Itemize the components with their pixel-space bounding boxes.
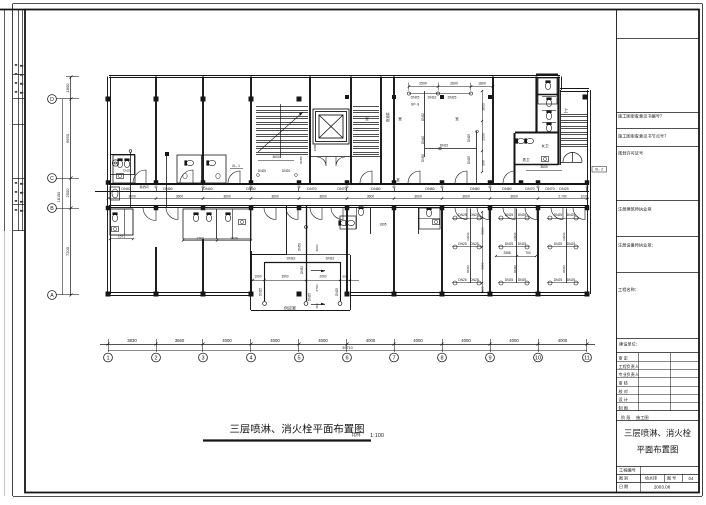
svg-text:1626: 1626 <box>230 236 238 240</box>
svg-text:DN40: DN40 <box>466 232 470 240</box>
svg-text:设 计: 设 计 <box>619 396 628 402</box>
svg-text:DN80: DN80 <box>425 187 434 191</box>
svg-text:2500: 2500 <box>482 133 486 141</box>
svg-text:2700: 2700 <box>315 284 319 291</box>
svg-text:DN25: DN25 <box>554 213 563 217</box>
svg-text:DN40: DN40 <box>513 232 517 240</box>
svg-text:1230: 1230 <box>580 194 588 198</box>
svg-text:6650: 6650 <box>65 133 70 143</box>
svg-text:审 定: 审 定 <box>619 355 628 361</box>
svg-text:DN32: DN32 <box>562 265 566 273</box>
svg-text:DN25: DN25 <box>567 213 576 217</box>
svg-text:500: 500 <box>342 275 347 279</box>
svg-text:室: 室 <box>398 116 402 121</box>
svg-text:DN25: DN25 <box>470 242 479 246</box>
svg-text:XL- 2: XL- 2 <box>595 168 603 172</box>
svg-text:11: 11 <box>584 356 590 362</box>
svg-text:DN80: DN80 <box>502 187 511 191</box>
svg-text:室: 室 <box>455 116 459 121</box>
svg-text:供应室: 供应室 <box>284 305 296 311</box>
svg-text:三层喷淋、消火栓平面布置图: 三层喷淋、消火栓平面布置图 <box>229 423 364 436</box>
svg-text:3600: 3600 <box>462 194 470 198</box>
svg-text:DN25: DN25 <box>458 278 467 282</box>
svg-text:DN25: DN25 <box>518 278 527 282</box>
svg-text:3: 3 <box>201 356 204 362</box>
svg-text:DN70: DN70 <box>545 187 554 191</box>
svg-text:9: 9 <box>488 356 491 362</box>
svg-text:3600: 3600 <box>176 194 184 198</box>
svg-text:4000: 4000 <box>318 338 328 343</box>
svg-text:2.700: 2.700 <box>558 194 566 198</box>
svg-text:DN25: DN25 <box>470 278 479 282</box>
svg-text:图 号: 图 号 <box>667 475 676 481</box>
svg-text:DN50: DN50 <box>298 243 302 251</box>
svg-text:04: 04 <box>689 476 694 481</box>
svg-text:3600: 3600 <box>319 194 327 198</box>
svg-text:审 核: 审 核 <box>619 379 628 385</box>
svg-text:DN25: DN25 <box>518 242 527 246</box>
svg-text:注册建筑师执业章: 注册建筑师执业章 <box>618 206 652 213</box>
svg-text:1895: 1895 <box>379 223 386 227</box>
svg-text:DN70: DN70 <box>525 187 534 191</box>
svg-text:3600: 3600 <box>482 103 486 111</box>
svg-text:DN25: DN25 <box>505 278 514 282</box>
svg-text:700: 700 <box>525 251 531 255</box>
svg-text:1571: 1571 <box>118 234 126 238</box>
svg-text:7200: 7200 <box>65 246 70 256</box>
svg-text:DN32: DN32 <box>513 265 517 273</box>
svg-text:女卫: 女卫 <box>541 143 549 148</box>
svg-text:XL- 1: XL- 1 <box>232 164 240 168</box>
svg-text:2600: 2600 <box>450 82 458 86</box>
svg-text:3600: 3600 <box>540 165 548 169</box>
svg-text:1000: 1000 <box>481 286 485 293</box>
svg-text:DN25: DN25 <box>467 156 471 164</box>
svg-text:DN32: DN32 <box>421 113 425 121</box>
svg-text:室: 室 <box>396 177 400 182</box>
svg-text:上: 上 <box>564 107 569 113</box>
svg-text:DN25: DN25 <box>505 242 514 246</box>
svg-text:建设单位：: 建设单位： <box>619 341 640 348</box>
svg-text:DN25: DN25 <box>505 213 514 217</box>
svg-text:39710: 39710 <box>342 346 353 350</box>
svg-text:2500: 2500 <box>419 82 427 86</box>
svg-text:工程负责人: 工程负责人 <box>619 363 639 369</box>
svg-text:8: 8 <box>440 356 443 362</box>
svg-text:制 图: 制 图 <box>619 404 628 410</box>
svg-text:DN80: DN80 <box>470 187 479 191</box>
svg-text:10: 10 <box>535 356 541 362</box>
svg-text:DN25: DN25 <box>411 96 420 100</box>
svg-text:4000: 4000 <box>366 338 376 343</box>
svg-text:DN25: DN25 <box>335 288 339 296</box>
svg-text:DN32: DN32 <box>466 265 470 273</box>
svg-text:施工图: 施工图 <box>636 414 649 421</box>
svg-text:2500: 2500 <box>481 227 485 234</box>
svg-text:DN25: DN25 <box>567 278 576 282</box>
svg-text:4000: 4000 <box>509 338 519 343</box>
svg-text:3600: 3600 <box>313 144 317 151</box>
svg-text:3600: 3600 <box>272 155 280 159</box>
svg-text:5: 5 <box>297 356 300 362</box>
svg-text:施工图审查意见书编号7: 施工图审查意见书编号7 <box>618 113 663 120</box>
svg-text:DN32: DN32 <box>428 96 437 100</box>
svg-text:工程编号: 工程编号 <box>619 467 636 474</box>
svg-text:6: 6 <box>345 356 348 362</box>
svg-text:平面布置图: 平面布置图 <box>637 445 679 455</box>
svg-text:7: 7 <box>392 356 395 362</box>
svg-text:DN25: DN25 <box>554 242 563 246</box>
svg-text:DN32: DN32 <box>300 266 304 274</box>
svg-text:2900: 2900 <box>481 262 485 269</box>
svg-text:DN50: DN50 <box>421 154 425 162</box>
svg-text:D: D <box>50 97 54 103</box>
svg-text:SP- 8: SP- 8 <box>411 103 419 107</box>
svg-text:DN25: DN25 <box>258 169 266 173</box>
svg-text:4000: 4000 <box>270 338 280 343</box>
svg-text:900: 900 <box>482 160 486 166</box>
svg-text:4000: 4000 <box>222 338 232 343</box>
svg-text:DN32: DN32 <box>440 144 449 148</box>
svg-text:DN25: DN25 <box>448 96 457 100</box>
svg-text:DN25: DN25 <box>458 213 467 217</box>
svg-text:DN40: DN40 <box>121 187 130 191</box>
svg-text:给水排: 给水排 <box>645 475 657 481</box>
svg-text:3660: 3660 <box>175 338 185 343</box>
svg-text:1: 1 <box>106 356 109 362</box>
svg-text:1000: 1000 <box>254 275 261 279</box>
svg-text:2000: 2000 <box>319 275 326 279</box>
svg-text:DN40: DN40 <box>421 136 425 144</box>
svg-text:DN80: DN80 <box>371 187 380 191</box>
svg-text:阶 段: 阶 段 <box>621 414 631 421</box>
svg-text:DN25: DN25 <box>554 278 563 282</box>
svg-text:DN25: DN25 <box>259 288 263 296</box>
svg-text:DN25: DN25 <box>467 134 471 142</box>
svg-text:3600: 3600 <box>128 194 136 198</box>
svg-text:三层喷淋、消火栓: 三层喷淋、消火栓 <box>624 428 692 438</box>
svg-text:比例: 比例 <box>352 431 361 438</box>
svg-text:DN25: DN25 <box>518 213 527 217</box>
svg-text:4000: 4000 <box>461 338 471 343</box>
svg-text:日 期: 日 期 <box>619 483 628 489</box>
svg-text:4: 4 <box>249 356 252 362</box>
svg-text:室: 室 <box>365 116 369 121</box>
svg-text:注册设备师执业章：: 注册设备师执业章： <box>618 242 656 249</box>
svg-text:DN32: DN32 <box>287 257 296 261</box>
svg-text:3600: 3600 <box>315 244 319 251</box>
svg-text:DN50: DN50 <box>163 187 172 191</box>
svg-text:600: 600 <box>315 303 319 308</box>
svg-text:DN40: DN40 <box>203 187 212 191</box>
svg-text:B: B <box>50 206 54 212</box>
svg-text:DN70: DN70 <box>337 187 346 191</box>
svg-text:C: C <box>50 176 54 182</box>
svg-text:DN32: DN32 <box>326 257 335 261</box>
svg-text:工程名称：: 工程名称： <box>618 286 639 293</box>
svg-text:DN25: DN25 <box>308 293 312 301</box>
svg-text:校 对: 校 对 <box>619 388 628 394</box>
svg-text:DN50: DN50 <box>246 187 255 191</box>
svg-text:1702: 1702 <box>196 236 204 240</box>
svg-text:3600: 3600 <box>510 194 518 198</box>
svg-text:施工图审查意见书节点号7: 施工图审查意见书节点号7 <box>618 133 667 140</box>
svg-text:3830: 3830 <box>127 338 137 343</box>
svg-text:男卫: 男卫 <box>522 157 530 162</box>
svg-text:3600: 3600 <box>271 194 279 198</box>
svg-text:管道井: 管道井 <box>385 111 390 122</box>
svg-text:2: 2 <box>154 356 157 362</box>
svg-text:1800: 1800 <box>65 83 70 93</box>
svg-text:2500: 2500 <box>65 188 70 198</box>
svg-text:4000: 4000 <box>558 338 568 343</box>
svg-text:DN50: DN50 <box>299 156 303 164</box>
svg-text:专业负责人: 专业负责人 <box>619 371 639 377</box>
svg-text:3600: 3600 <box>367 194 375 198</box>
svg-text:煮奶间: 煮奶间 <box>139 184 148 189</box>
svg-text:DN25: DN25 <box>559 187 568 191</box>
svg-text:1:100: 1:100 <box>370 433 384 439</box>
svg-text:2003.08: 2003.08 <box>654 485 671 490</box>
svg-text:1800: 1800 <box>478 82 486 86</box>
svg-text:3600: 3600 <box>414 194 422 198</box>
svg-text:4000: 4000 <box>413 338 423 343</box>
svg-text:3600: 3600 <box>223 194 231 198</box>
svg-text:DN25: DN25 <box>282 169 290 173</box>
svg-text:A: A <box>50 293 54 299</box>
svg-text:2588: 2588 <box>503 251 510 255</box>
svg-text:DN25: DN25 <box>567 242 576 246</box>
svg-text:DN25: DN25 <box>458 242 467 246</box>
svg-text:DN40: DN40 <box>562 232 566 240</box>
svg-text:3500: 3500 <box>281 275 288 279</box>
svg-text:18150: 18150 <box>57 192 61 203</box>
svg-text:图 别: 图 别 <box>619 475 628 481</box>
svg-text:DN25: DN25 <box>470 213 479 217</box>
svg-text:规划许可证号: 规划许可证号 <box>618 150 643 157</box>
svg-text:DN25: DN25 <box>123 169 131 173</box>
svg-text:DN70: DN70 <box>307 187 316 191</box>
